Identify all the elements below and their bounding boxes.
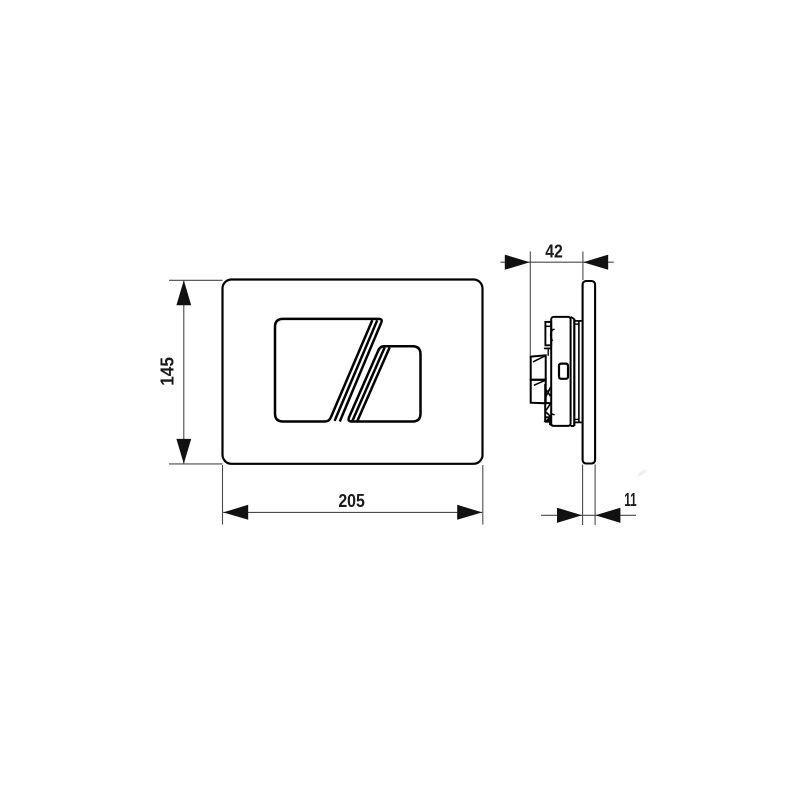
svg-text:11: 11 bbox=[624, 490, 637, 510]
svg-text:205: 205 bbox=[338, 491, 365, 511]
svg-text:42: 42 bbox=[545, 242, 563, 262]
svg-text:145: 145 bbox=[158, 357, 178, 386]
